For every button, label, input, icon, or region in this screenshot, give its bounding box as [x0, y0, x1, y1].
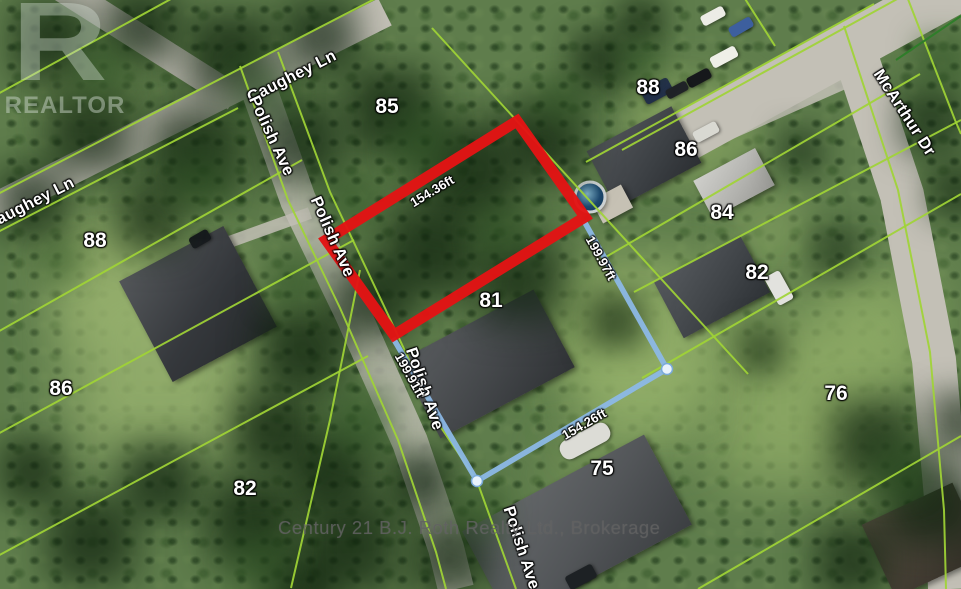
lot-line — [0, 108, 238, 234]
lot-number-81: 81 — [479, 289, 502, 313]
lot-line — [0, 0, 180, 96]
lot-line — [698, 436, 961, 589]
lot-line — [642, 194, 961, 378]
lot-line — [586, 4, 874, 162]
lot-line-polish-east — [278, 52, 516, 589]
lot-number-82-left: 82 — [233, 477, 256, 501]
boundary-vertex-dot — [662, 364, 673, 375]
lot-line — [0, 240, 354, 436]
lot-number-88: 88 — [636, 76, 659, 100]
lot-number-84: 84 — [710, 201, 733, 225]
lot-line — [291, 270, 360, 588]
lot-number-82: 82 — [745, 261, 768, 285]
aerial-map: Caughey Ln Caughey Ln Polish Ave Polish … — [0, 0, 961, 589]
lot-number-88-left: 88 — [83, 229, 106, 253]
lot-number-75: 75 — [590, 457, 613, 481]
lot-number-86-left: 86 — [49, 377, 72, 401]
lot-line — [0, 0, 392, 196]
lot-number-86: 86 — [674, 138, 697, 162]
brokerage-watermark: Century 21 B.J. Roth Realty Ltd., Broker… — [278, 517, 660, 539]
lot-line — [742, 0, 775, 46]
boundary-vertex-dot — [472, 476, 483, 487]
highlighted-parcel-outline — [326, 121, 585, 335]
lot-number-85: 85 — [375, 95, 398, 119]
lot-number-76: 76 — [824, 382, 847, 406]
surveyed-boundary-line — [393, 221, 667, 481]
